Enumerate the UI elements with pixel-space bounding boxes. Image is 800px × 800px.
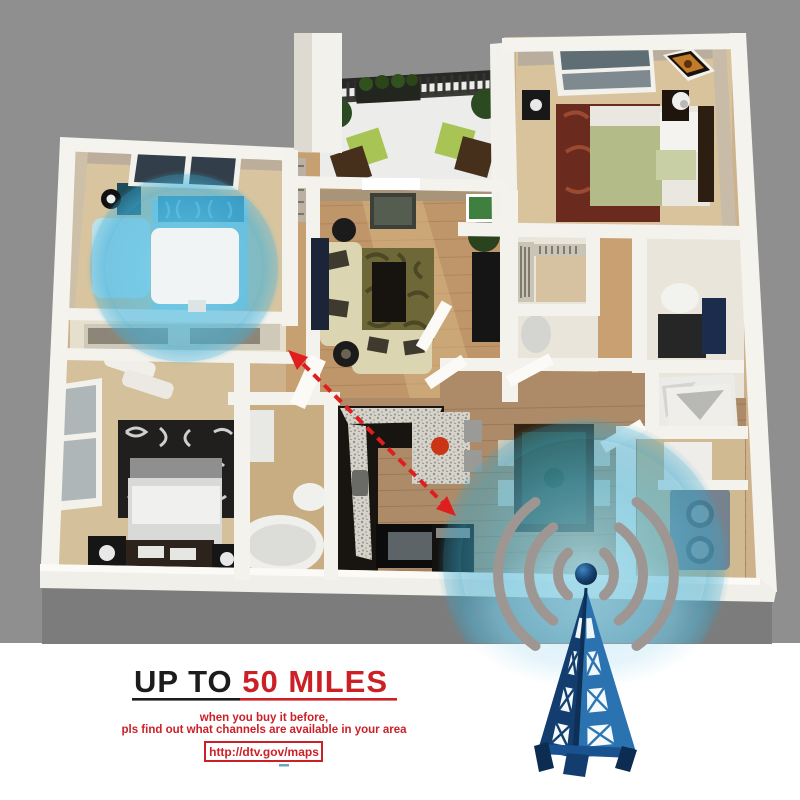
svg-text:http://dtv.gov/maps: http://dtv.gov/maps: [209, 745, 319, 759]
svg-text:pls find out what channels are: pls find out what channels are available…: [121, 724, 407, 736]
svg-text:UP TO 50 MILES: UP TO 50 MILES: [134, 664, 388, 699]
svg-text:when you buy it before,: when you buy it before,: [199, 712, 328, 724]
